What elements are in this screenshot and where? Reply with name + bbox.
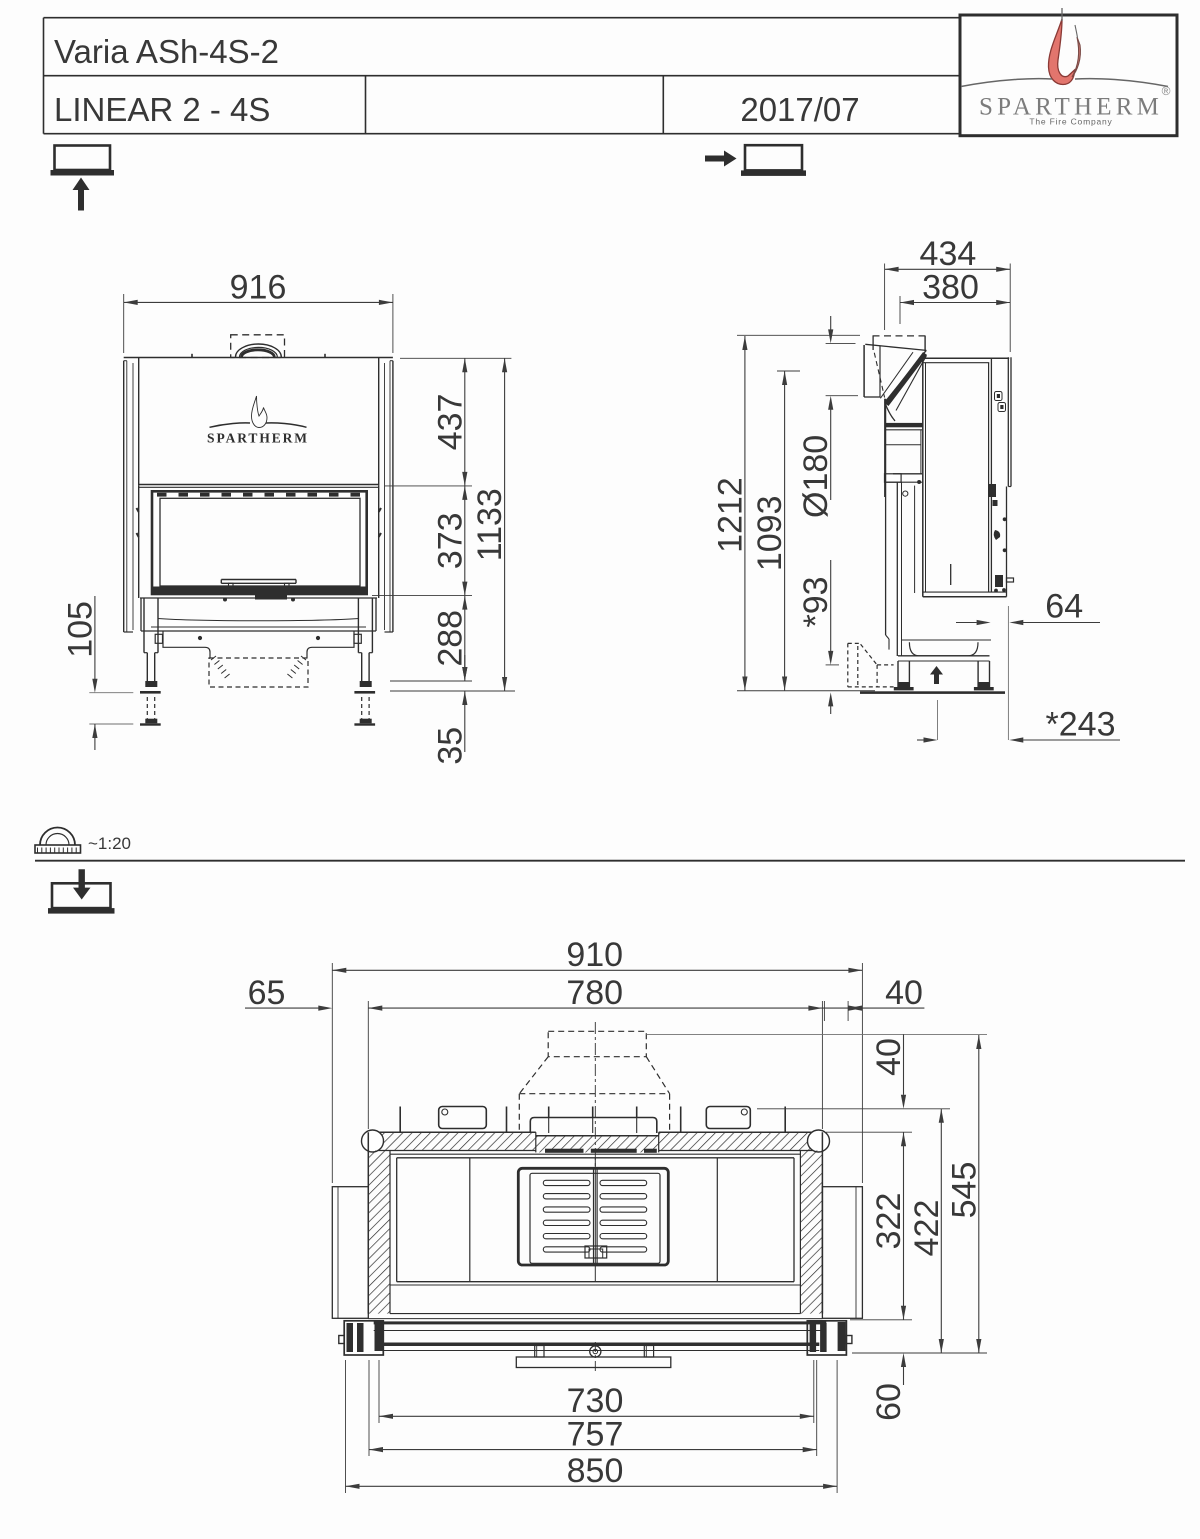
svg-text:~1:20: ~1:20 [88,834,131,853]
svg-text:757: 757 [567,1415,624,1453]
svg-text:Varia ASh-4S-2: Varia ASh-4S-2 [54,33,279,70]
svg-text:Ø180: Ø180 [797,435,835,518]
svg-text:105: 105 [61,601,99,658]
svg-text:437: 437 [431,394,469,451]
svg-text:LINEAR 2 - 4S: LINEAR 2 - 4S [54,91,270,128]
svg-text:®: ® [1162,84,1171,98]
svg-text:380: 380 [922,269,979,307]
svg-text:910: 910 [566,936,623,974]
svg-text:1212: 1212 [711,477,749,553]
svg-text:916: 916 [230,269,287,307]
svg-text:*93: *93 [797,576,835,627]
svg-text:730: 730 [567,1382,624,1420]
svg-text:The Fire Company: The Fire Company [1029,117,1112,127]
svg-text:780: 780 [566,974,623,1012]
svg-text:422: 422 [908,1200,946,1257]
svg-text:373: 373 [431,512,469,569]
svg-text:40: 40 [870,1038,908,1076]
svg-text:40: 40 [885,974,923,1012]
svg-text:322: 322 [870,1193,908,1250]
svg-text:545: 545 [945,1162,983,1219]
svg-text:64: 64 [1045,588,1083,626]
svg-text:2017/07: 2017/07 [740,91,859,128]
svg-text:SPARTHERM: SPARTHERM [207,431,309,446]
svg-text:65: 65 [248,974,286,1012]
svg-text:*243: *243 [1046,706,1116,744]
svg-text:1093: 1093 [751,495,789,571]
svg-text:850: 850 [567,1452,624,1490]
svg-text:288: 288 [431,610,469,667]
svg-text:35: 35 [431,727,469,765]
svg-text:434: 434 [920,235,977,273]
svg-text:1133: 1133 [471,488,509,561]
svg-text:60: 60 [870,1383,908,1421]
